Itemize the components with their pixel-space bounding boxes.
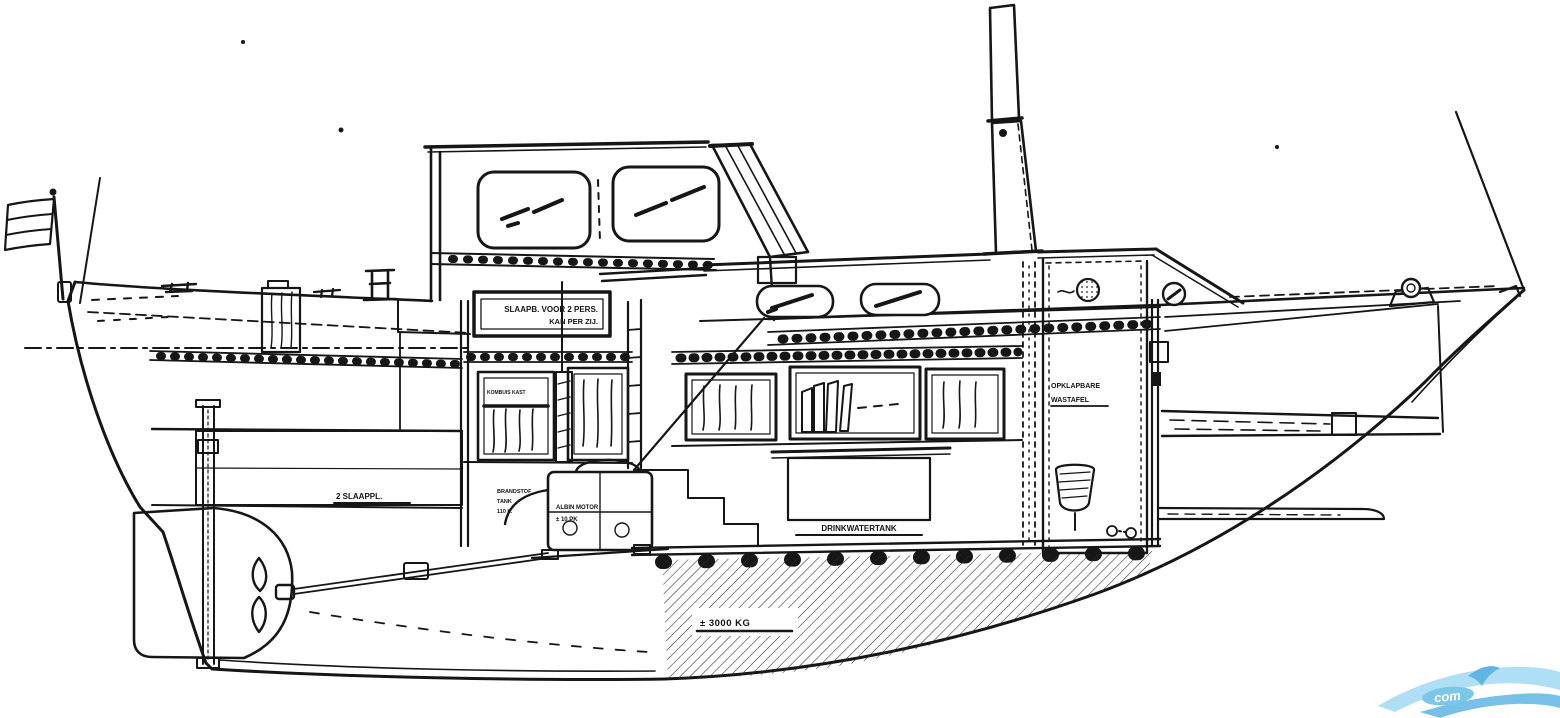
sheer-line-fore (1160, 288, 1524, 305)
compass-dome (1077, 279, 1099, 301)
compass-flourish (1058, 291, 1074, 293)
cabin-roof-aft (704, 254, 988, 265)
windscreen (712, 144, 808, 257)
mast-upper (990, 5, 1019, 121)
bulkhead-blob (1153, 372, 1161, 386)
vberth-mattress-dashes (1170, 420, 1330, 431)
water-splash-dashes-2 (98, 317, 168, 321)
engine-box-slope (634, 318, 764, 470)
engine-note-left-3: 110 L. (497, 509, 513, 515)
engine-note-right-1: ALBIN MOTOR (556, 505, 599, 511)
rudder-stock (203, 406, 214, 664)
forepeak-sole-dashes (1168, 514, 1340, 515)
rudder-assembly (134, 400, 292, 668)
galley-cabinet-left (478, 372, 554, 460)
washroom: OPKLAPBARE WASTAFEL (1043, 259, 1168, 553)
mast-bolt (999, 129, 1007, 137)
forestay (1456, 112, 1524, 290)
galley-shelf-label: KOMBUIS KAST (487, 390, 526, 396)
berth-plate-text-1: SLAAPB. VOOR 2 PERS. (504, 305, 598, 314)
hull-inner-bottom-line (220, 660, 655, 671)
saloon-locker-fwd-inner (932, 375, 998, 433)
saloon-locker-fwd (926, 369, 1004, 439)
aft-bilge-dashes (310, 612, 648, 652)
watermark-logo: com (1378, 666, 1560, 718)
engine-note-left-1: BRANDSTOF (497, 489, 532, 495)
mast (984, 5, 1042, 545)
seacock-dots (1119, 531, 1125, 532)
bulwark-dashed-aft (88, 312, 470, 333)
locker-fwd-curtain (943, 381, 976, 428)
washbasin-hatch (1059, 472, 1090, 498)
wheelhouse-roof (425, 142, 708, 147)
galley-counter-line (464, 462, 632, 463)
engine: BRANDSTOF TANK 110 L. ALBIN MOTOR ± 10 P… (497, 460, 668, 559)
wheelhouse-aft-wall (431, 147, 440, 301)
bookshelf-dashes (858, 404, 898, 408)
engine-internal-lines (548, 472, 652, 550)
engine-note-left-2: TANK (497, 499, 512, 505)
foredeck-underside (1165, 304, 1438, 331)
watermark-text: com (1433, 688, 1462, 706)
propeller-blades (252, 558, 266, 632)
bollard-winch (364, 270, 396, 300)
locker-top-ticks (680, 352, 1018, 358)
seacock-1 (1107, 526, 1117, 536)
aft-deck-fittings (162, 270, 470, 352)
paper-specks (241, 40, 1279, 149)
seacock-2 (1126, 528, 1136, 538)
saloon-locker-aft (686, 374, 776, 440)
boat-arrangement-drawing: SLAAPB. VOOR 2 PERS. KAN PER ZIJ. KOMBUI… (0, 0, 1560, 718)
saloon-bookshelf (790, 367, 920, 439)
washbasin-label-1: OPKLAPBARE (1051, 383, 1100, 390)
flag-staff-finial (50, 189, 57, 196)
propeller-shaft (294, 553, 548, 594)
books (802, 381, 852, 432)
table-top (772, 448, 950, 452)
cabin-roof-fwd-inner (1038, 255, 1154, 258)
berth-plate-text-2: KAN PER ZIJ. (549, 317, 598, 326)
water-tank-label: DRINKWATERTANK (821, 524, 896, 533)
cabin-roof-aft-inner (704, 260, 990, 271)
cabin-roof-fwd (1038, 249, 1156, 252)
wheelhouse-belt-ticks (452, 259, 710, 265)
locker-aft-curtain (703, 385, 752, 430)
table-pedestal (788, 458, 930, 520)
windscreen-top-rail (710, 144, 752, 146)
hull-inner-stem-line (1412, 298, 1516, 402)
aft-cabin-label: 2 SLAAPPL. (336, 492, 382, 501)
galley-hanging-utensils (493, 409, 533, 452)
speck-2 (339, 128, 344, 133)
mast-partners (984, 251, 1042, 254)
water-splash-dashes-1 (92, 296, 178, 300)
vberth-bottom (1162, 434, 1440, 436)
engine-pulley-2 (615, 523, 629, 537)
ladder-rungs (628, 329, 641, 442)
ballast-label: ± 3000 KG (700, 618, 750, 629)
speck-1 (241, 40, 245, 44)
deck-box-grain (271, 292, 292, 348)
propeller-assembly (252, 553, 548, 632)
window-mullion-dashes (598, 180, 600, 242)
vberth-top (1162, 411, 1438, 418)
flag-stripes (6, 214, 52, 235)
aft-berth-front-line (196, 468, 462, 469)
washbasin-label-2: WASTAFEL (1051, 397, 1090, 404)
ladder-rails (628, 300, 641, 468)
engine-pulley-1 (563, 521, 577, 535)
engine-room-bulkhead (461, 301, 468, 546)
companionway (600, 268, 764, 546)
flag-outline (5, 199, 54, 250)
sliding-hatch-rails (600, 268, 706, 281)
engine-note-right-2: ± 10 PK (556, 517, 578, 523)
bilge: ± 3000 KG (310, 539, 1160, 678)
washroom-top-dashes (1046, 261, 1144, 263)
drawing-canvas: SLAAPB. VOOR 2 PERS. KAN PER ZIJ. KOMBUI… (0, 0, 1560, 718)
wheelhouse: SLAAPB. VOOR 2 PERS. KAN PER ZIJ. (425, 142, 808, 336)
galley-curtain (583, 379, 612, 447)
speck-3 (1275, 145, 1279, 149)
exhaust-pipe (505, 490, 548, 524)
rudder-head-cap (196, 400, 220, 407)
windlass-drum (1402, 279, 1420, 297)
